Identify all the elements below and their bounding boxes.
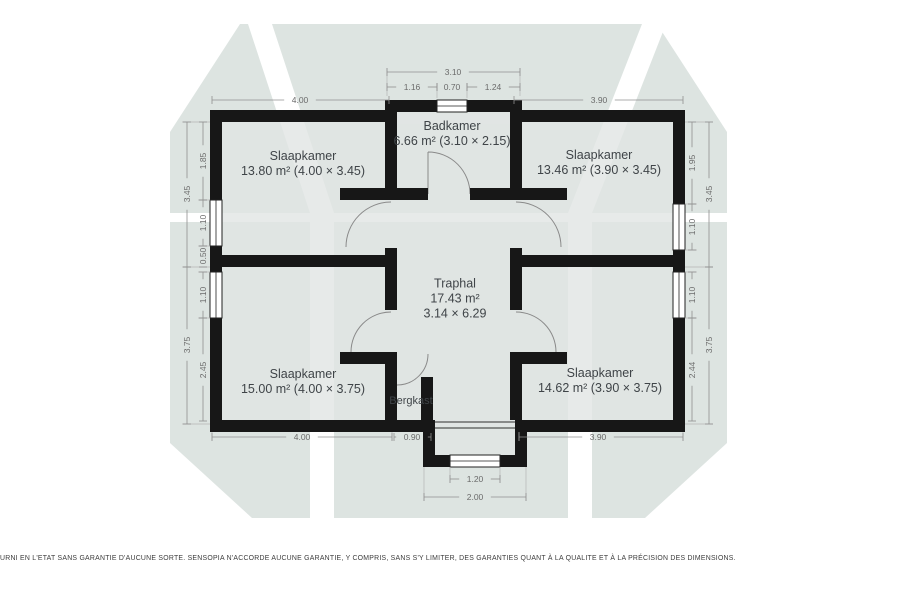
room-name: Traphal xyxy=(424,277,487,292)
room-label-traphal: Traphal 17.43 m² 3.14 × 6.29 xyxy=(424,277,487,322)
room-area: 6.66 m² (3.10 × 2.15) xyxy=(393,134,510,149)
room-label-slaapkamer-bottom-right: Slaapkamer 14.62 m² (3.90 × 3.75) xyxy=(538,366,662,396)
room-area: 17.43 m² xyxy=(424,292,487,307)
room-dims: 3.14 × 6.29 xyxy=(424,307,487,322)
dim-label: 1.16 xyxy=(404,82,421,92)
dim-label: 3.45 xyxy=(182,186,192,203)
room-label-slaapkamer-top-right: Slaapkamer 13.46 m² (3.90 × 3.45) xyxy=(537,148,661,178)
room-label-slaapkamer-bottom-left: Slaapkamer 15.00 m² (4.00 × 3.75) xyxy=(241,367,365,397)
dim-label: 3.10 xyxy=(445,67,462,77)
room-name: Slaapkamer xyxy=(241,149,365,164)
dim-label: 1.85 xyxy=(198,153,208,170)
dim-label: 4.00 xyxy=(294,432,311,442)
dim-label: 3.90 xyxy=(591,95,608,105)
dim-label: 3.75 xyxy=(704,337,714,354)
dim-label: 1.10 xyxy=(687,219,697,236)
room-label-badkamer: Badkamer 6.66 m² (3.10 × 2.15) xyxy=(393,119,510,149)
room-area: 15.00 m² (4.00 × 3.75) xyxy=(241,382,365,397)
dim-label: 0.50 xyxy=(198,248,208,265)
dim-label: 0.90 xyxy=(404,432,421,442)
dim-label: 2.00 xyxy=(467,492,484,502)
room-label-bergkast: Bergkast xyxy=(389,395,432,407)
dim-label: 4.00 xyxy=(292,95,309,105)
room-name: Slaapkamer xyxy=(537,148,661,163)
disclaimer-text: URNI EN L'ETAT SANS GARANTIE D'AUCUNE SO… xyxy=(0,555,900,562)
dim-label: 1.24 xyxy=(485,82,502,92)
room-name: Slaapkamer xyxy=(538,366,662,381)
dim-label: 1.20 xyxy=(467,474,484,484)
dim-label: 3.90 xyxy=(590,432,607,442)
dim-label: 2.44 xyxy=(687,362,697,379)
dim-label: 0.70 xyxy=(444,82,461,92)
dim-label: 1.95 xyxy=(687,155,697,172)
room-area: 13.46 m² (3.90 × 3.45) xyxy=(537,163,661,178)
dim-label: 3.75 xyxy=(182,337,192,354)
room-name: Bergkast xyxy=(389,395,432,407)
floor-plan-page: Badkamer 6.66 m² (3.10 × 2.15) Slaapkame… xyxy=(0,0,900,600)
dim-label: 3.45 xyxy=(704,186,714,203)
room-area: 14.62 m² (3.90 × 3.75) xyxy=(538,381,662,396)
dim-label: 1.10 xyxy=(687,287,697,304)
room-name: Badkamer xyxy=(393,119,510,134)
dim-label: 2.45 xyxy=(198,362,208,379)
room-area: 13.80 m² (4.00 × 3.45) xyxy=(241,164,365,179)
dim-label: 1.10 xyxy=(198,287,208,304)
room-label-slaapkamer-top-left: Slaapkamer 13.80 m² (4.00 × 3.45) xyxy=(241,149,365,179)
room-name: Slaapkamer xyxy=(241,367,365,382)
dim-label: 1.10 xyxy=(198,215,208,232)
